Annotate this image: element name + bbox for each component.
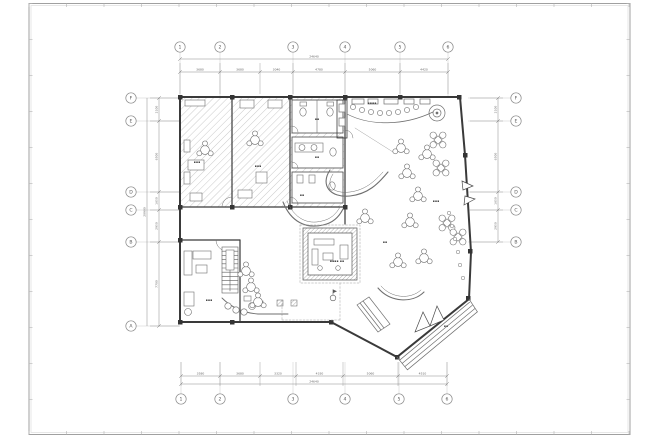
grid-bubble-label: F <box>130 96 133 102</box>
room-label: ▪▪▪ <box>255 164 262 168</box>
dimension-label: 2100 <box>155 106 159 114</box>
round-table <box>357 209 373 224</box>
dimension-label: 4510 <box>419 372 427 376</box>
dimension-label: 3320 <box>274 372 282 376</box>
room-label: ▪▪▪ <box>433 199 440 203</box>
grid-bubble-label: C <box>129 208 132 214</box>
grid-bubble-label: E <box>515 119 518 125</box>
wall-chair <box>458 263 462 267</box>
room-label: ▪▪▪ <box>194 160 201 164</box>
room-label: ▪▪ <box>315 117 319 121</box>
grid-bubble-label: E <box>130 119 133 125</box>
round-table <box>399 164 415 179</box>
dimension-total: 24640 <box>309 380 319 384</box>
wall-chair <box>447 211 451 215</box>
level-marker-icon <box>330 290 337 301</box>
grid-bubble-label: 6 <box>447 45 450 51</box>
dimension-label: 5060 <box>369 68 377 72</box>
wall-chair <box>456 250 460 254</box>
dimension-label: 3040 <box>273 68 281 72</box>
ruler-ticks-icon <box>29 4 630 435</box>
dimension-total: 24640 <box>309 55 319 59</box>
grid-bubble-label: F <box>515 96 518 102</box>
grid-bubble-label: C <box>514 208 517 214</box>
floor-plan-canvas: 123456123456FEDCBAFEDCB 3680368030404780… <box>0 0 660 438</box>
dimension-total: 20900 <box>143 207 147 217</box>
dimension-label: 1650 <box>494 197 498 205</box>
grid-bubble-label: 5 <box>398 397 401 403</box>
bar-stool <box>377 110 382 115</box>
grid-bubble-label: 1 <box>179 45 182 51</box>
round-table <box>416 249 432 264</box>
grid-bubble-label: 3 <box>292 397 295 403</box>
entry-double-door <box>415 306 444 332</box>
grid-bubble-label: 4 <box>344 397 347 403</box>
room-label: ▪▪ <box>383 240 387 244</box>
bar-stool <box>386 110 391 115</box>
bar-stool <box>350 104 355 109</box>
dimension-label: 6500 <box>155 153 159 161</box>
dimension-label: 3580 <box>197 372 205 376</box>
room-label: ▪▪ <box>444 324 448 328</box>
grid-bubble-label: 4 <box>344 45 347 51</box>
grid-bubble-label: B <box>129 240 132 246</box>
central-lounge-feature <box>300 225 360 283</box>
round-table <box>243 278 259 293</box>
leader-line <box>355 128 393 152</box>
four-seat-table <box>439 215 455 231</box>
drawing-sheet: 123456123456FEDCBAFEDCB 3680368030404780… <box>0 0 660 438</box>
dimension-label: 2950 <box>155 222 159 230</box>
dimension-label: 3680 <box>196 68 204 72</box>
dimension-label: 3680 <box>236 68 244 72</box>
wall-chair <box>461 276 465 280</box>
four-seat-table <box>430 132 446 148</box>
dimension-label: 7700 <box>155 280 159 288</box>
dimension-label: 3680 <box>236 372 244 376</box>
grid-bubble-label: 2 <box>219 397 222 403</box>
round-table <box>250 293 266 308</box>
four-seat-table <box>433 160 449 176</box>
double-door-right <box>462 181 475 205</box>
dimension-label: 1650 <box>155 197 159 205</box>
wall-chair <box>450 224 454 228</box>
dimension-label: 4780 <box>315 68 323 72</box>
grid-bubble-label: 2 <box>219 45 222 51</box>
dimension-label: 2950 <box>494 222 498 230</box>
grid-bubble-label: D <box>514 190 518 196</box>
dimension-label: 5060 <box>367 372 375 376</box>
round-table <box>402 213 418 228</box>
dimension-label: 2100 <box>494 106 498 114</box>
floor-mats <box>277 300 297 306</box>
grid-bubble-label: 1 <box>180 397 183 403</box>
ramp <box>357 297 390 332</box>
room-label: ▪▪▪ <box>206 298 213 302</box>
room-label: ▪▪ <box>315 155 319 159</box>
bar-stool <box>233 307 239 313</box>
grid-bubble-label: B <box>514 240 517 246</box>
four-seat-table <box>450 229 466 245</box>
dimension-label: 4420 <box>420 68 428 72</box>
grid-bubble-label: 5 <box>399 45 402 51</box>
bar-stool <box>359 107 364 112</box>
room-label: ▪▪▪▪ <box>368 101 377 105</box>
dashed-projection <box>282 283 340 320</box>
dimension-label: 6500 <box>494 153 498 161</box>
bar-stool <box>225 303 231 309</box>
grid-bubble-label: 3 <box>292 45 295 51</box>
wall-chair <box>453 237 457 241</box>
round-table <box>390 253 406 268</box>
sheet-frame <box>29 4 630 435</box>
bar-stool <box>395 109 400 114</box>
bar-stool <box>413 104 418 109</box>
room-label: ▪▪ <box>300 193 304 197</box>
grid-bubble-label: D <box>129 190 133 196</box>
bar-stool <box>368 109 373 114</box>
round-table <box>410 187 426 202</box>
bar-counter-top <box>339 99 445 126</box>
grid-bubble-label: 6 <box>446 397 449 403</box>
room-label: ▪▪▪▪ ▪▪ <box>330 259 345 263</box>
bar-stool <box>404 107 409 112</box>
round-table <box>393 139 409 154</box>
bar-stool <box>241 309 247 315</box>
dimension-label: 4330 <box>316 372 324 376</box>
